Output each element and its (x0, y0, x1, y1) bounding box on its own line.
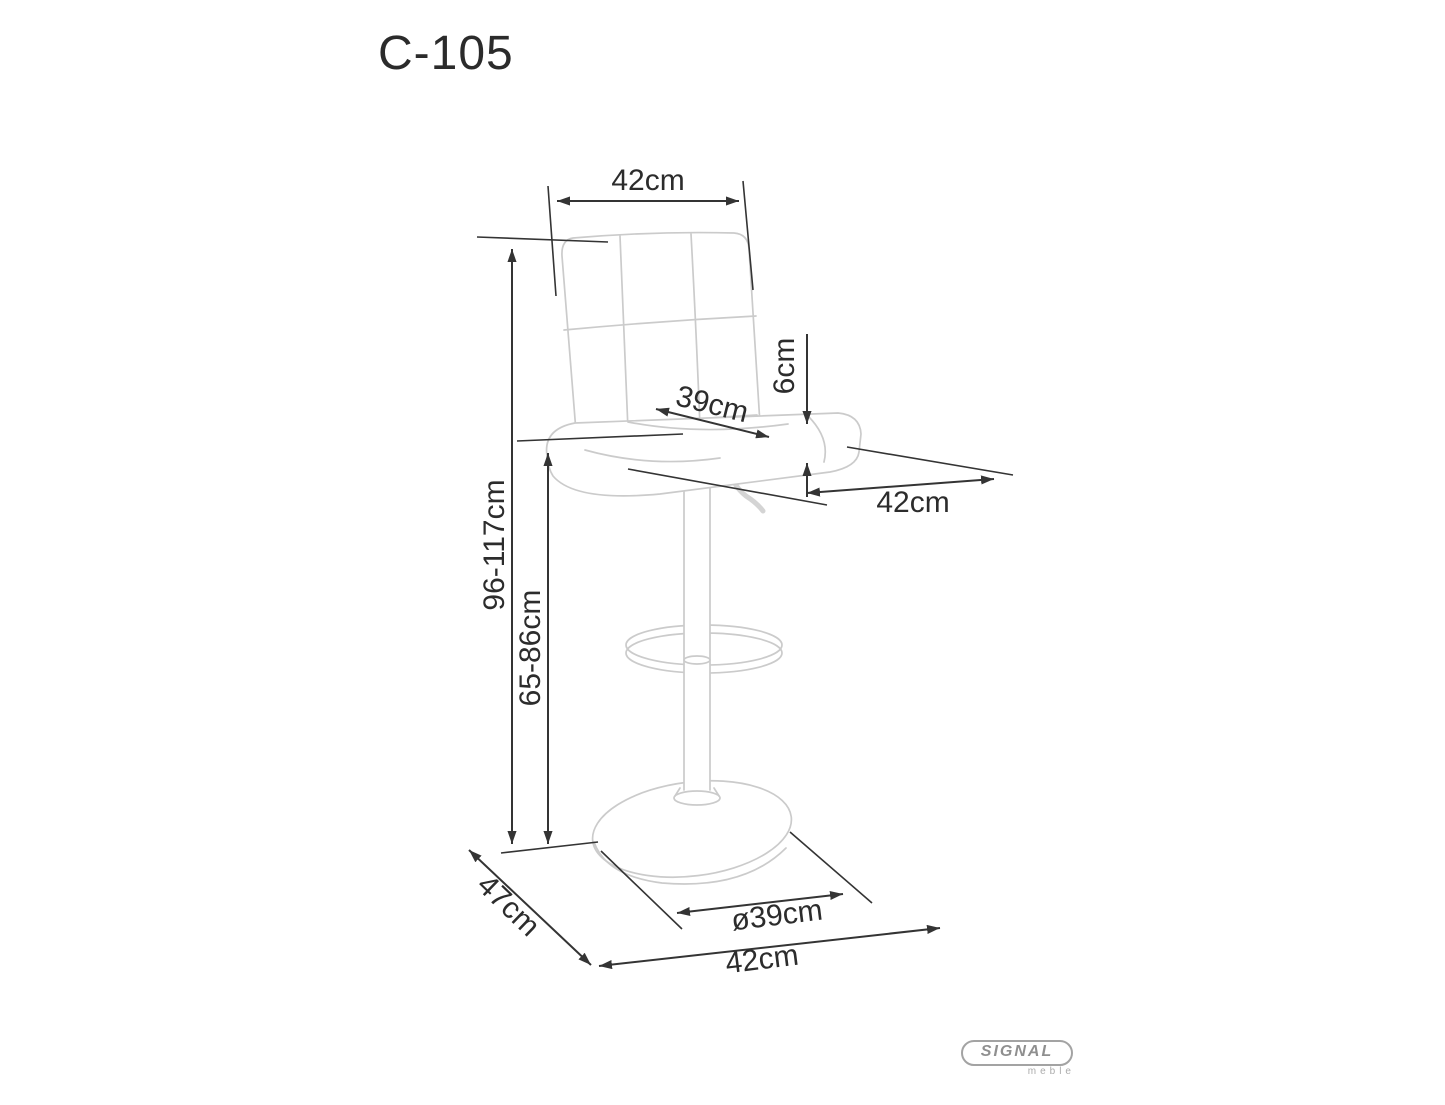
model-title: C-105 (378, 26, 514, 81)
logo-capsule: SIGNAL (961, 1040, 1073, 1066)
technical-drawing-page: C-105 42cm 39cm 6cm 42cm 96-117cm 65-86c… (0, 0, 1445, 1105)
label-seat-height: 65-86cm (516, 590, 546, 707)
stool-sketch (547, 233, 861, 888)
label-overall-height: 96-117cm (480, 479, 510, 610)
gas-lift-column (681, 475, 713, 790)
logo-brand-text: SIGNAL (981, 1044, 1053, 1060)
column-foot (674, 791, 720, 805)
label-seat-width: 42cm (876, 488, 949, 518)
signal-meble-logo: SIGNAL meble (961, 1040, 1077, 1077)
label-cushion-thickness: 6cm (770, 338, 800, 395)
stool-dimension-figure (0, 0, 1445, 1105)
logo-tagline: meble (961, 1067, 1077, 1077)
label-backrest-width: 42cm (611, 166, 684, 196)
